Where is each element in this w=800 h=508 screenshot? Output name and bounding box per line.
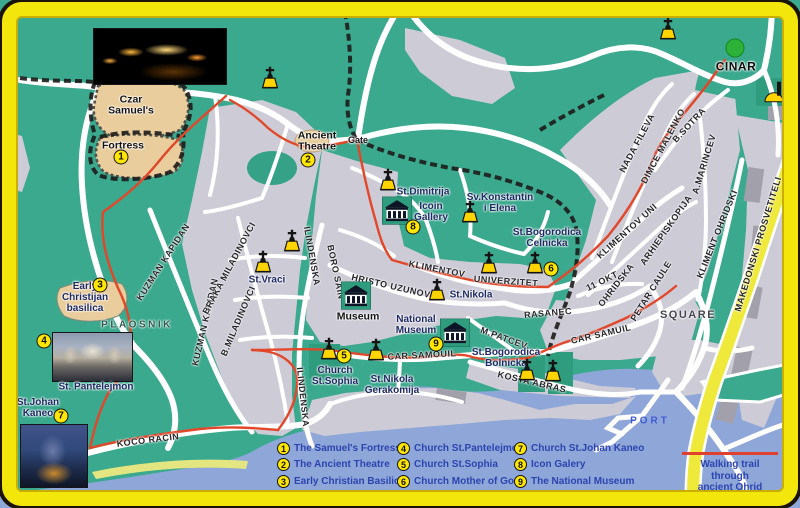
church-icon [252,250,274,276]
place-label: National Museum [396,315,437,337]
walking-trail-note: Walking trail through ancient Ohrid [682,452,778,494]
monument-icon [757,78,791,104]
legend-item-label: The Samuel's Fortress [294,443,401,454]
place-label: St.Vraci [249,276,286,287]
poi-marker-8: 8 [406,220,421,235]
kaneo-photo [20,424,88,488]
legend-item-label: Early Christian Basilica [294,476,405,487]
church-icon [542,359,564,385]
church-icon [478,251,500,277]
poi-marker-1: 1 [114,150,129,165]
plaosnik-label: PLAOSNIK [101,320,173,331]
church-icon [524,251,546,277]
place-label: Gate [348,136,368,146]
walking-trail-note-line2: ancient Ohrid [682,482,778,494]
legend-item-label: Icon Galery [531,459,585,470]
place-label: Czar Samuel's [108,95,154,118]
church-icon [516,358,538,384]
legend-item-label: The National Museum [531,476,634,487]
legend-num-2: 2 [277,458,290,471]
place-label: St. Pantelejmon [58,383,133,394]
church-icon [459,200,481,226]
museum-icon [440,319,470,347]
map-canvas: Walking trail through ancient Ohrid KUZM… [0,0,800,508]
legend-num-5: 5 [397,458,410,471]
place-label: Church St.Sophia [312,366,358,388]
church-icon [377,168,399,194]
place-label: Museum [337,311,380,322]
place-label: St.Bogorodica Celnicka [513,228,581,250]
legend-item-label: Church Mother of God [414,476,520,487]
poi-marker-4: 4 [37,334,52,349]
legend-item-label: The Ancient Theatre [294,459,390,470]
legend-item-label: Church St.Pantelejmon [414,443,524,454]
legend-num-9: 9 [514,475,527,488]
legend-num-1: 1 [277,442,290,455]
legend-item-label: Church St.Johan Kaneo [531,443,644,454]
legend-item-label: Church St.Sophia [414,459,498,470]
church-icon [657,17,679,43]
place-label: SQUARE [660,310,716,322]
poi-marker-6: 6 [544,262,559,277]
ohrid-tourist-map: { "colors": { "land_green": "#3BA98E", "… [0,0,800,508]
place-label: St.Nikola [450,291,493,302]
legend-num-3: 3 [277,475,290,488]
church-icon [281,229,303,255]
place-label: Icoin Gallery [414,202,448,224]
church-icon [365,338,387,364]
legend-num-6: 6 [397,475,410,488]
museum-icon [341,282,371,310]
place-label: Ancient Theatre [298,131,337,154]
poi-marker-3: 3 [93,278,108,293]
poi-marker-7: 7 [54,409,69,424]
walking-trail-note-line1: Walking trail through [682,459,778,482]
pantelejmon-photo [52,332,133,382]
poi-marker-9: 9 [429,337,444,352]
tree-icon [725,38,745,58]
legend-num-7: 7 [514,442,527,455]
place-label: St.Nikola Gerakomija [365,375,419,397]
legend-num-8: 8 [514,458,527,471]
place-label: PORT [630,417,670,428]
legend-num-4: 4 [397,442,410,455]
place-label: CINAR [716,61,757,74]
church-icon [259,66,281,92]
church-icon [426,278,448,304]
walking-trail-sample-line [682,452,778,455]
poi-marker-5: 5 [337,349,352,364]
poi-marker-2: 2 [301,153,316,168]
fortress-photo [93,28,227,85]
